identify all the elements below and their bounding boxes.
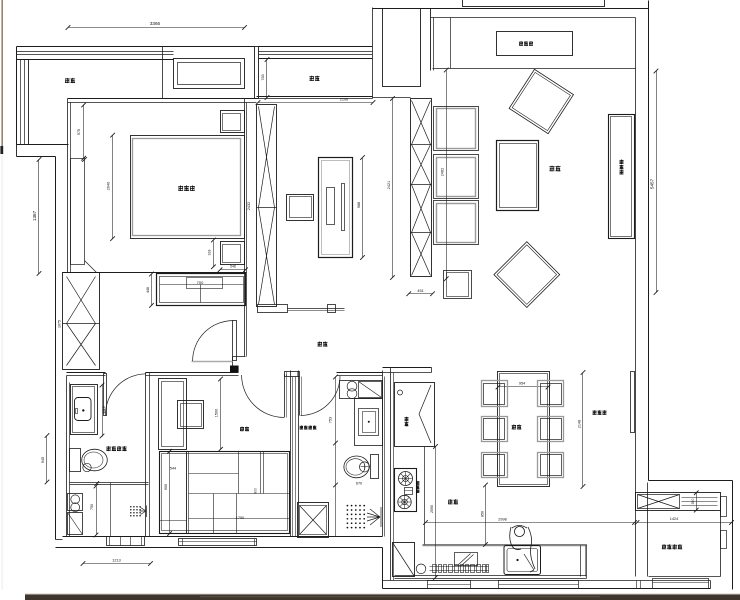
svg-text:975: 975 — [77, 129, 81, 135]
svg-text:1367: 1367 — [32, 210, 37, 221]
svg-text:2148: 2148 — [577, 420, 581, 428]
svg-text:448: 448 — [146, 287, 150, 293]
svg-text:5457: 5457 — [649, 178, 654, 189]
svg-text:2462: 2462 — [441, 168, 445, 176]
svg-text:900: 900 — [164, 484, 168, 490]
svg-text:544: 544 — [170, 467, 176, 471]
svg-text:750: 750 — [90, 504, 94, 510]
svg-text:2040: 2040 — [107, 182, 111, 190]
svg-text:2998: 2998 — [498, 517, 506, 521]
svg-text:3366: 3366 — [150, 21, 161, 26]
svg-text:318: 318 — [208, 250, 212, 256]
svg-text:753: 753 — [329, 417, 333, 423]
svg-text:700: 700 — [197, 280, 204, 285]
svg-text:2432: 2432 — [247, 202, 251, 210]
svg-text:988: 988 — [357, 202, 361, 208]
svg-text:2590: 2590 — [430, 505, 434, 513]
svg-text:1213: 1213 — [112, 558, 120, 562]
svg-text:1750: 1750 — [236, 516, 244, 520]
svg-text:1110: 1110 — [102, 406, 106, 413]
svg-text:850: 850 — [480, 511, 484, 517]
svg-text:763: 763 — [261, 74, 265, 80]
svg-text:1424: 1424 — [670, 517, 678, 521]
svg-text:1075: 1075 — [58, 320, 62, 328]
svg-text:451: 451 — [417, 289, 423, 293]
svg-text:954: 954 — [519, 382, 525, 386]
svg-text:350: 350 — [691, 499, 695, 505]
svg-text:945: 945 — [41, 457, 45, 463]
svg-text:2421: 2421 — [387, 181, 391, 189]
svg-text:2196: 2196 — [340, 98, 348, 102]
svg-text:548: 548 — [230, 264, 236, 268]
svg-text:670: 670 — [356, 482, 362, 486]
svg-text:900: 900 — [254, 488, 258, 494]
svg-text:1500: 1500 — [215, 409, 219, 417]
